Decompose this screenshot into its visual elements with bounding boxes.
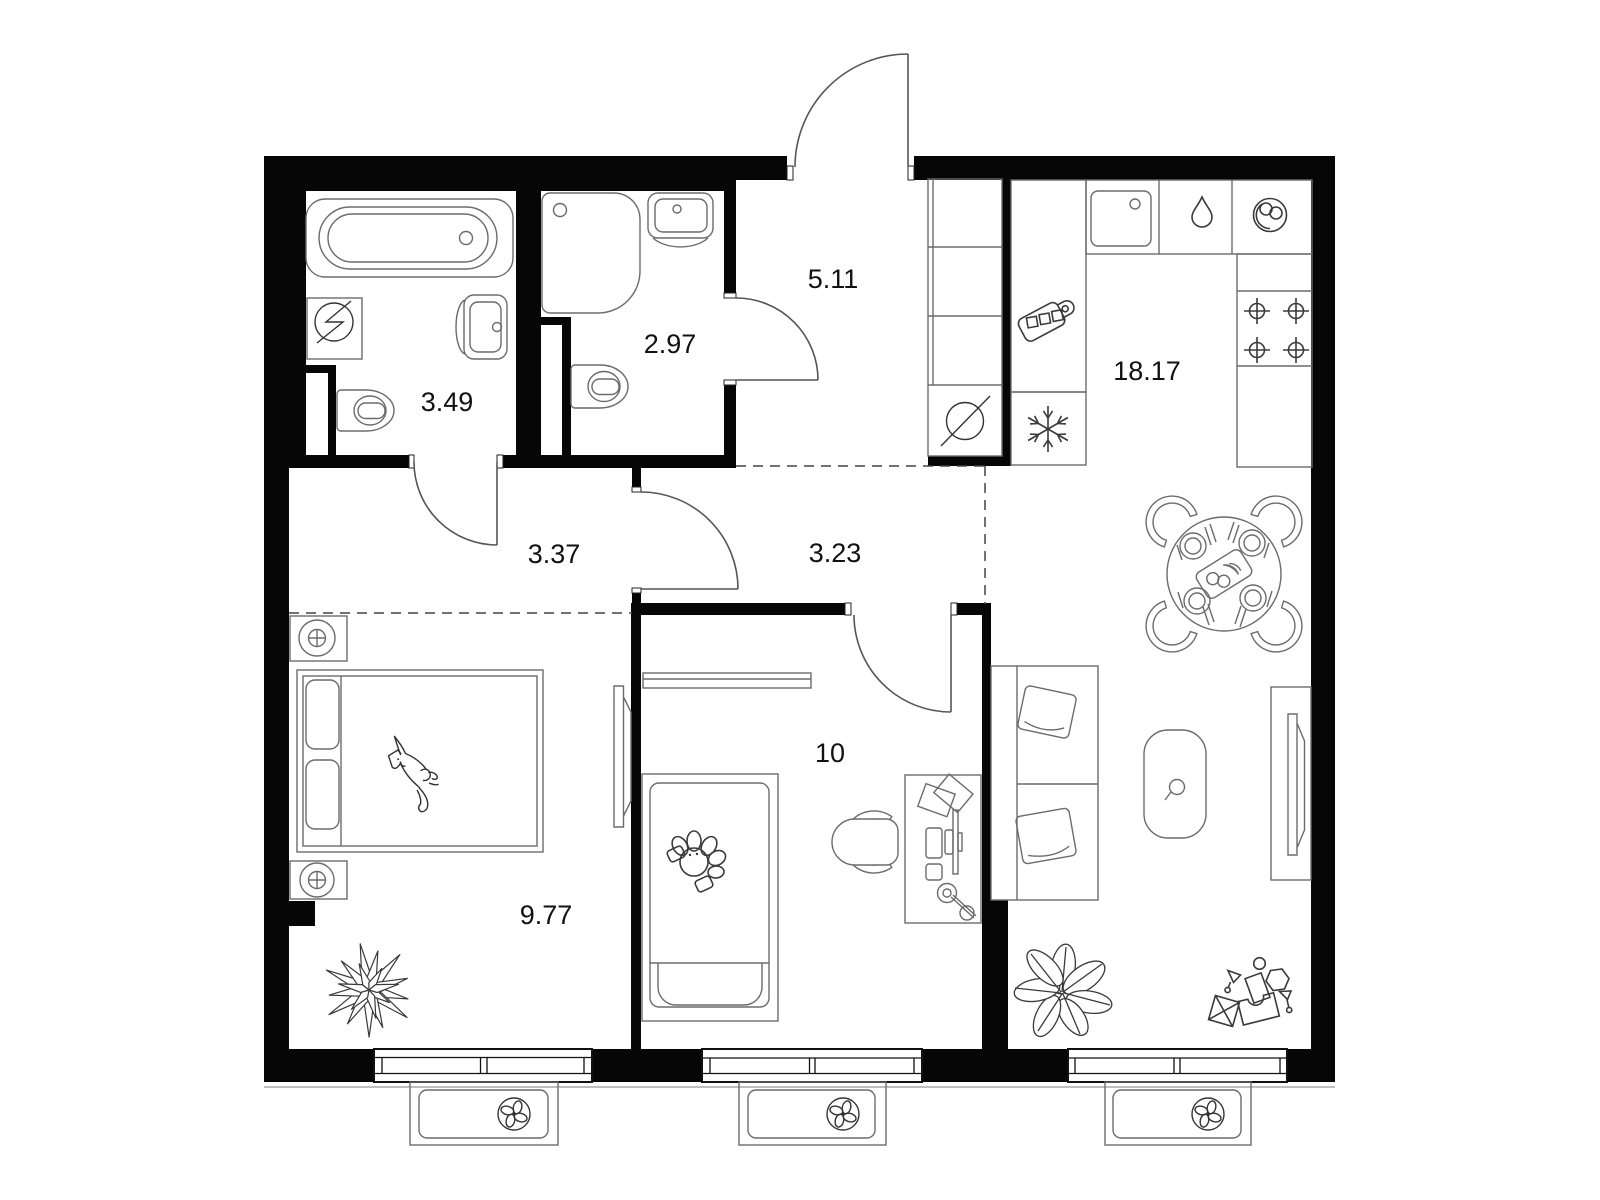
svg-text:18.17: 18.17: [1113, 356, 1181, 386]
svg-text:3.23: 3.23: [809, 538, 862, 568]
svg-text:3.49: 3.49: [421, 387, 474, 417]
svg-text:3.37: 3.37: [528, 539, 581, 569]
svg-text:2.97: 2.97: [644, 329, 697, 359]
svg-text:10: 10: [815, 738, 845, 768]
svg-text:5.11: 5.11: [808, 264, 859, 294]
svg-text:9.77: 9.77: [520, 900, 573, 930]
